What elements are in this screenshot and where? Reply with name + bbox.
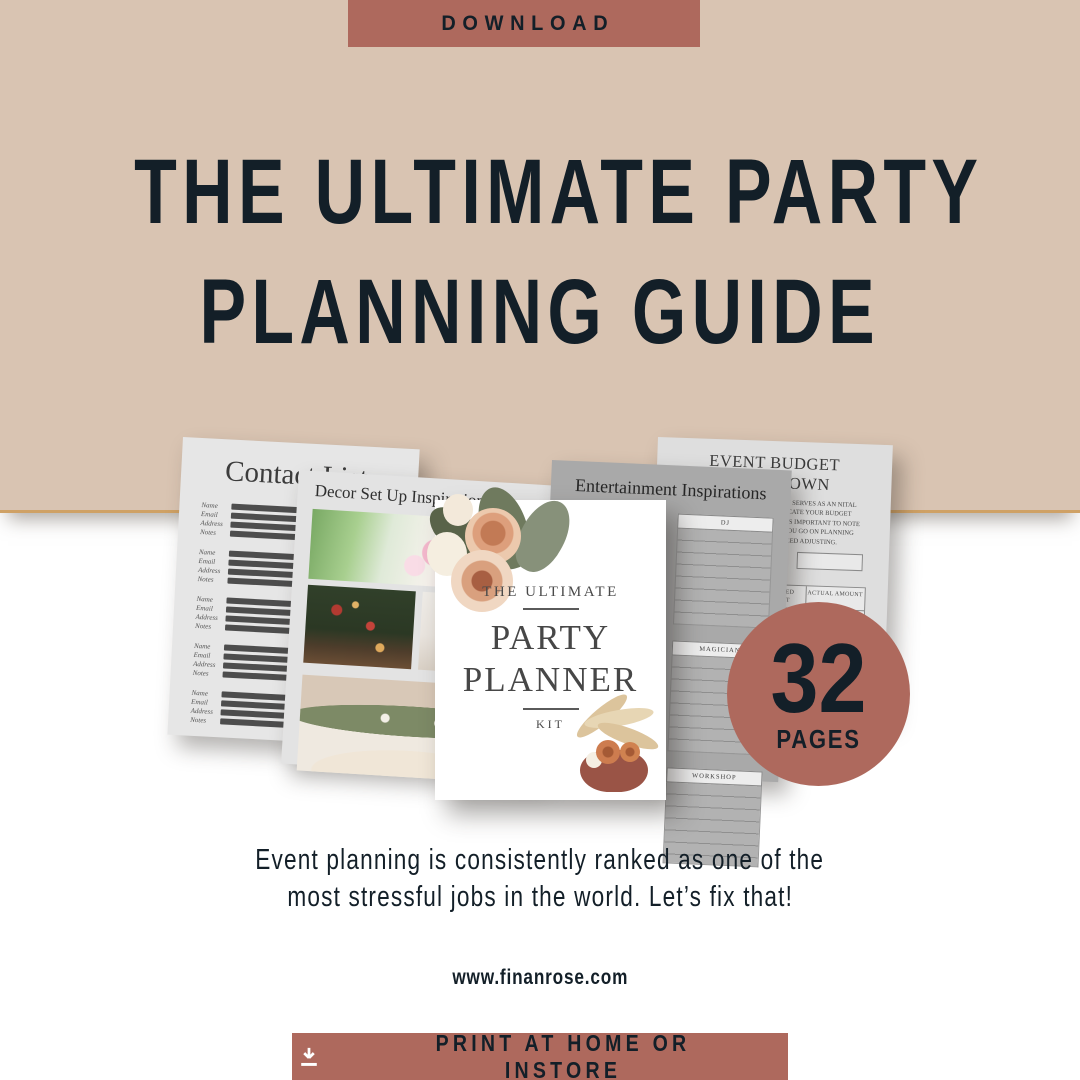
tagline-line2: most stressful jobs in the world. Let’s …	[287, 879, 793, 916]
download-badge[interactable]: DOWNLOAD	[348, 0, 700, 47]
promo-graphic: DOWNLOAD THE ULTIMATE PARTY PLANNING GUI…	[0, 0, 1080, 1080]
budget-amount-box	[796, 552, 863, 571]
section-lines	[673, 529, 773, 629]
page-count-number: 32	[771, 634, 867, 722]
cta-button[interactable]: PRINT AT HOME OR INSTORE	[292, 1033, 788, 1080]
contact-field-label: Address	[195, 612, 225, 622]
contact-field-label: Email	[191, 697, 221, 707]
contact-field-label: Notes	[197, 574, 227, 584]
contact-field-label: Email	[193, 650, 223, 660]
contact-field-label: Address	[198, 565, 228, 575]
cta-button-label: PRINT AT HOME OR INSTORE	[377, 1030, 749, 1080]
contact-field-label: Name	[194, 641, 224, 651]
entertainment-section-dj: DJ	[673, 514, 774, 629]
download-badge-label: DOWNLOAD	[434, 12, 614, 36]
contact-field-label: Name	[191, 688, 221, 698]
download-icon	[298, 1046, 320, 1068]
contact-field-label: Email	[196, 603, 226, 613]
contact-field-label: Notes	[190, 715, 220, 725]
contact-field-label: Notes	[200, 528, 230, 538]
page-title-line1: THE ULTIMATE PARTY	[134, 132, 983, 252]
cover-page: THE ULTIMATE PARTY PLANNER KIT	[435, 500, 666, 800]
decor-photo-christmas	[303, 585, 416, 669]
hero-section: DOWNLOAD THE ULTIMATE PARTY PLANNING GUI…	[0, 0, 1080, 513]
page-title-line2: PLANNING GUIDE	[200, 252, 880, 372]
divider	[523, 608, 579, 610]
website-url: www.finanrose.com	[0, 966, 1080, 990]
tagline-line1: Event planning is consistently ranked as…	[256, 842, 825, 879]
contact-field-label: Address	[190, 706, 220, 716]
cover-eyebrow: THE ULTIMATE	[435, 584, 666, 601]
page-count-label: PAGES	[776, 724, 860, 755]
tagline: Event planning is consistently ranked as…	[0, 842, 1080, 916]
cover-title-line1: PARTY	[435, 617, 666, 659]
page-count-badge: 32 PAGES	[727, 602, 910, 786]
contact-field-label: Email	[198, 556, 228, 566]
contact-field-label: Email	[201, 510, 231, 520]
contact-field-label: Notes	[192, 668, 222, 678]
dried-floral-bowl-art	[558, 702, 662, 798]
contact-field-label: Notes	[195, 621, 225, 631]
contact-field-label: Name	[201, 501, 231, 511]
contact-field-label: Name	[199, 548, 229, 558]
page-title: THE ULTIMATE PARTY PLANNING GUIDE	[0, 132, 1080, 372]
contact-field-label: Address	[200, 519, 230, 529]
contact-field-label: Name	[196, 594, 226, 604]
cover-title-line2: PLANNER	[435, 659, 666, 701]
contact-field-label: Address	[193, 659, 223, 669]
